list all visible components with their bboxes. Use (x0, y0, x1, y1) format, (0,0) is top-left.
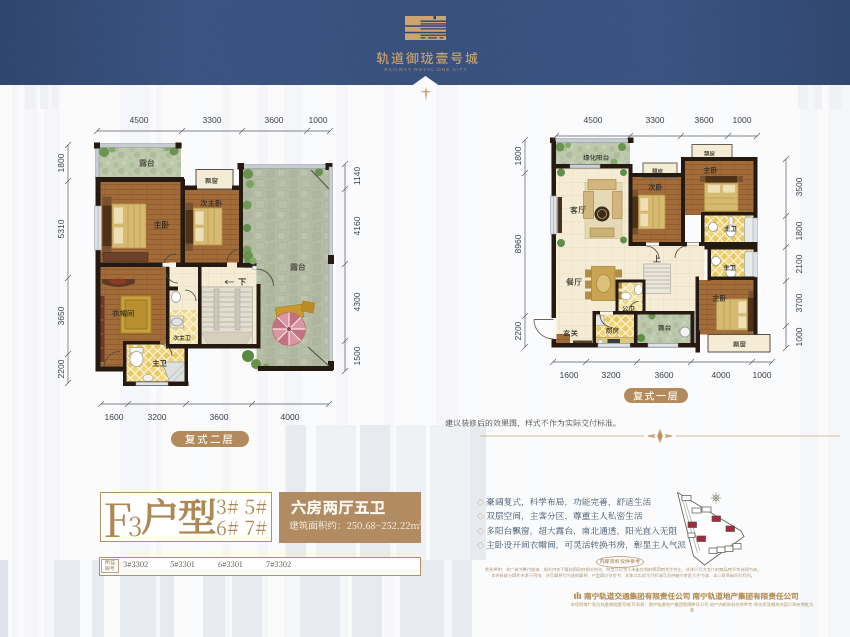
svg-text:主卫: 主卫 (723, 262, 736, 272)
svg-text:绿化阳台: 绿化阳台 (583, 152, 610, 162)
svg-text:上: 上 (653, 254, 661, 265)
svg-text:3700: 3700 (793, 293, 805, 312)
svg-text:主卧: 主卧 (712, 293, 727, 304)
svg-text:1000: 1000 (793, 327, 805, 346)
svg-text:3200: 3200 (148, 411, 167, 423)
svg-text:2100: 2100 (793, 254, 805, 273)
svg-text:2200: 2200 (55, 359, 67, 378)
svg-text:1000: 1000 (733, 114, 752, 126)
svg-text:4160: 4160 (351, 216, 363, 235)
svg-text:次主卫: 次主卫 (173, 333, 191, 342)
svg-text:露台: 露台 (290, 262, 306, 273)
svg-text:3600: 3600 (265, 114, 284, 126)
svg-text:餐厅: 餐厅 (566, 277, 582, 288)
svg-text:次主卧: 次主卧 (200, 198, 223, 209)
svg-text:3300: 3300 (203, 114, 222, 126)
svg-text:露台: 露台 (658, 322, 672, 332)
svg-text:露台: 露台 (139, 158, 155, 169)
svg-text:1800: 1800 (55, 153, 67, 172)
svg-text:主卧: 主卧 (703, 165, 718, 176)
svg-text:飘窗: 飘窗 (733, 339, 747, 349)
svg-text:3600: 3600 (695, 114, 714, 126)
svg-text:4500: 4500 (130, 114, 149, 126)
svg-text:4000: 4000 (281, 411, 300, 423)
svg-text:5310: 5310 (55, 219, 67, 238)
svg-text:3600: 3600 (655, 369, 674, 381)
svg-text:3500: 3500 (793, 177, 805, 196)
svg-text:3600: 3600 (210, 411, 229, 423)
svg-text:3200: 3200 (602, 369, 621, 381)
svg-text:1000: 1000 (753, 369, 772, 381)
svg-text:飘窗: 飘窗 (704, 150, 716, 158)
svg-text:主卧: 主卧 (153, 219, 171, 231)
svg-text:客厅: 客厅 (569, 205, 586, 216)
svg-text:复式二层: 复式二层 (185, 432, 235, 447)
svg-text:次卧: 次卧 (648, 182, 663, 193)
svg-text:4000: 4000 (712, 369, 731, 381)
svg-text:复式一层: 复式一层 (633, 388, 679, 403)
svg-text:3300: 3300 (646, 114, 665, 126)
svg-text:衣帽间: 衣帽间 (112, 308, 135, 319)
svg-text:4300: 4300 (351, 292, 363, 311)
svg-text:玄关: 玄关 (563, 328, 578, 339)
svg-text:飘窗: 飘窗 (205, 175, 219, 185)
svg-text:1800: 1800 (512, 146, 524, 165)
svg-text:1600: 1600 (105, 411, 124, 423)
svg-text:2200: 2200 (512, 321, 524, 340)
svg-text:3650: 3650 (55, 306, 67, 325)
svg-text:主卫: 主卫 (724, 223, 737, 233)
svg-text:1140: 1140 (351, 167, 363, 186)
svg-text:1500: 1500 (351, 346, 363, 365)
svg-text:1600: 1600 (560, 369, 579, 381)
svg-text:主卫: 主卫 (152, 358, 167, 369)
svg-text:下: 下 (238, 276, 247, 288)
svg-text:1800: 1800 (793, 221, 805, 240)
svg-text:8960: 8960 (512, 234, 524, 253)
svg-text:1000: 1000 (309, 114, 328, 126)
svg-text:4500: 4500 (584, 114, 603, 126)
